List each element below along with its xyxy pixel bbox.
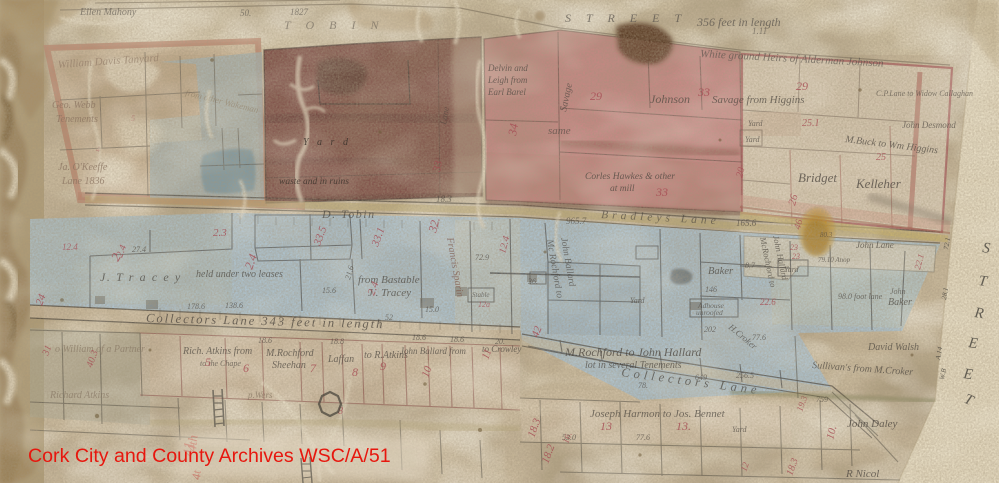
svg-text:18.6: 18.6 xyxy=(412,333,426,342)
svg-text:Leigh from: Leigh from xyxy=(487,75,528,85)
svg-text:33: 33 xyxy=(697,85,710,99)
svg-text:M.Rochford to John Hallard: M.Rochford to John Hallard xyxy=(564,345,702,359)
svg-text:Delvin and: Delvin and xyxy=(487,63,528,73)
svg-text:20.: 20. xyxy=(495,337,505,346)
svg-text:53.0: 53.0 xyxy=(562,433,576,442)
svg-text:18.6: 18.6 xyxy=(450,335,464,344)
svg-text:Geo. Webb: Geo. Webb xyxy=(52,100,96,111)
svg-text:7: 7 xyxy=(310,361,317,375)
svg-text:77.6: 77.6 xyxy=(752,333,766,342)
svg-text:R Nicol: R Nicol xyxy=(845,468,879,480)
svg-text:John Daley: John Daley xyxy=(847,418,898,430)
svg-text:T O B I N: T O B I N xyxy=(284,18,384,32)
svg-text:S T R E E T: S T R E E T xyxy=(565,11,687,25)
svg-text:Yard: Yard xyxy=(745,135,761,144)
svg-text:John: John xyxy=(890,287,906,296)
svg-text:25: 25 xyxy=(876,152,886,163)
svg-text:256.5: 256.5 xyxy=(736,371,754,380)
svg-text:M.Rochford: M.Rochford xyxy=(265,348,315,359)
svg-text:same: same xyxy=(548,125,571,137)
svg-text:Yard: Yard xyxy=(630,296,646,305)
svg-text:Rich. Atkins from: Rich. Atkins from xyxy=(182,346,252,357)
svg-text:Baker: Baker xyxy=(888,297,912,308)
svg-text:unroofed: unroofed xyxy=(696,308,723,317)
svg-text:29: 29 xyxy=(590,89,602,103)
svg-text:78.: 78. xyxy=(638,381,648,390)
svg-text:6: 6 xyxy=(243,361,249,375)
svg-text:98.0 foot lane: 98.0 foot lane xyxy=(838,292,883,301)
svg-text:138.6: 138.6 xyxy=(225,301,243,310)
svg-text:22.6: 22.6 xyxy=(760,297,776,307)
svg-text:25.1: 25.1 xyxy=(802,118,820,129)
svg-text:15.0: 15.0 xyxy=(425,305,439,314)
svg-text:9: 9 xyxy=(380,359,386,373)
svg-text:held under two leases: held under two leases xyxy=(196,269,283,280)
svg-text:27.4: 27.4 xyxy=(132,245,146,254)
svg-text:202: 202 xyxy=(704,325,716,334)
svg-text:Ellen Mahony: Ellen Mahony xyxy=(79,7,137,18)
svg-text:165.6: 165.6 xyxy=(736,218,757,228)
svg-text:John Desmond: John Desmond xyxy=(902,120,956,130)
svg-text:356 feet in length: 356 feet in length xyxy=(696,15,781,29)
svg-text:p.Wers: p.Wers xyxy=(247,390,273,400)
svg-text:Yard: Yard xyxy=(748,119,764,128)
svg-text:18.6: 18.6 xyxy=(258,336,272,345)
svg-text:Tenements: Tenements xyxy=(56,114,98,125)
svg-text:D. Tobin: D. Tobin xyxy=(321,207,376,221)
svg-text:23: 23 xyxy=(792,252,800,261)
svg-text:5: 5 xyxy=(205,355,211,369)
svg-text:Earl Barel: Earl Barel xyxy=(487,87,526,97)
svg-text:Yard: Yard xyxy=(732,425,748,434)
svg-text:Richard Atkins: Richard Atkins xyxy=(49,390,109,401)
svg-text:34: 34 xyxy=(505,122,521,137)
svg-text:23: 23 xyxy=(790,243,798,252)
svg-text:965.7: 965.7 xyxy=(566,216,587,226)
svg-text:Ja. O'Keeffe: Ja. O'Keeffe xyxy=(58,162,108,173)
svg-text:12a: 12a xyxy=(478,300,490,309)
svg-text:13: 13 xyxy=(600,419,612,433)
svg-text:1827: 1827 xyxy=(290,7,309,17)
svg-text:29: 29 xyxy=(796,79,808,93)
svg-text:Laffan: Laffan xyxy=(327,354,354,365)
svg-text:18.3: 18.3 xyxy=(436,194,452,204)
svg-text:8.7: 8.7 xyxy=(745,261,756,270)
svg-text:77.6: 77.6 xyxy=(636,433,650,442)
svg-text:50.: 50. xyxy=(240,8,251,18)
svg-text:Savage from Higgins: Savage from Higgins xyxy=(712,94,804,106)
svg-text:12.4: 12.4 xyxy=(62,242,78,252)
svg-text:David Walsh: David Walsh xyxy=(867,342,919,353)
svg-text:33: 33 xyxy=(655,185,668,199)
svg-text:178.6: 178.6 xyxy=(187,302,205,311)
svg-text:Sheehan: Sheehan xyxy=(272,360,306,371)
svg-text:2.3: 2.3 xyxy=(213,227,227,239)
svg-text:Yard: Yard xyxy=(784,265,800,274)
svg-text:15.6: 15.6 xyxy=(322,286,336,295)
svg-text:C.P.Lane to Widow Callaghan: C.P.Lane to Widow Callaghan xyxy=(876,89,973,98)
svg-text:36.: 36. xyxy=(527,277,538,286)
svg-text:Lane 1836: Lane 1836 xyxy=(61,176,105,187)
svg-text:52: 52 xyxy=(385,313,393,322)
svg-text:Corles Hawkes & other: Corles Hawkes & other xyxy=(585,172,675,182)
svg-text:at mill: at mill xyxy=(610,184,635,194)
svg-text:J. T r a c e y: J. T r a c e y xyxy=(100,270,182,284)
svg-text:Bridget: Bridget xyxy=(798,170,837,185)
svg-text:8: 8 xyxy=(352,365,358,379)
svg-text:John Lane: John Lane xyxy=(856,240,894,250)
svg-text:John Ballard from: John Ballard from xyxy=(400,346,466,356)
svg-text:146: 146 xyxy=(705,285,717,294)
svg-text:80.3: 80.3 xyxy=(820,231,833,239)
svg-text:72.9: 72.9 xyxy=(475,253,489,262)
svg-text:Cork City and County Archives: Cork City and County Archives WSC/A/51 xyxy=(28,445,391,467)
svg-text:1.11: 1.11 xyxy=(752,26,767,36)
svg-text:18.8: 18.8 xyxy=(330,337,344,346)
svg-text:Y a r d: Y a r d xyxy=(303,137,351,148)
svg-text:from Bastable: from Bastable xyxy=(358,274,420,286)
svg-text:Stable: Stable xyxy=(472,291,490,299)
svg-text:Kelleher: Kelleher xyxy=(855,176,902,191)
svg-text:Baker: Baker xyxy=(708,266,734,277)
svg-text:79.10 Anop: 79.10 Anop xyxy=(818,256,851,264)
svg-text:waste and in ruins: waste and in ruins xyxy=(279,177,349,187)
svg-text:Johnson: Johnson xyxy=(650,92,690,106)
svg-text:13.: 13. xyxy=(676,419,691,433)
